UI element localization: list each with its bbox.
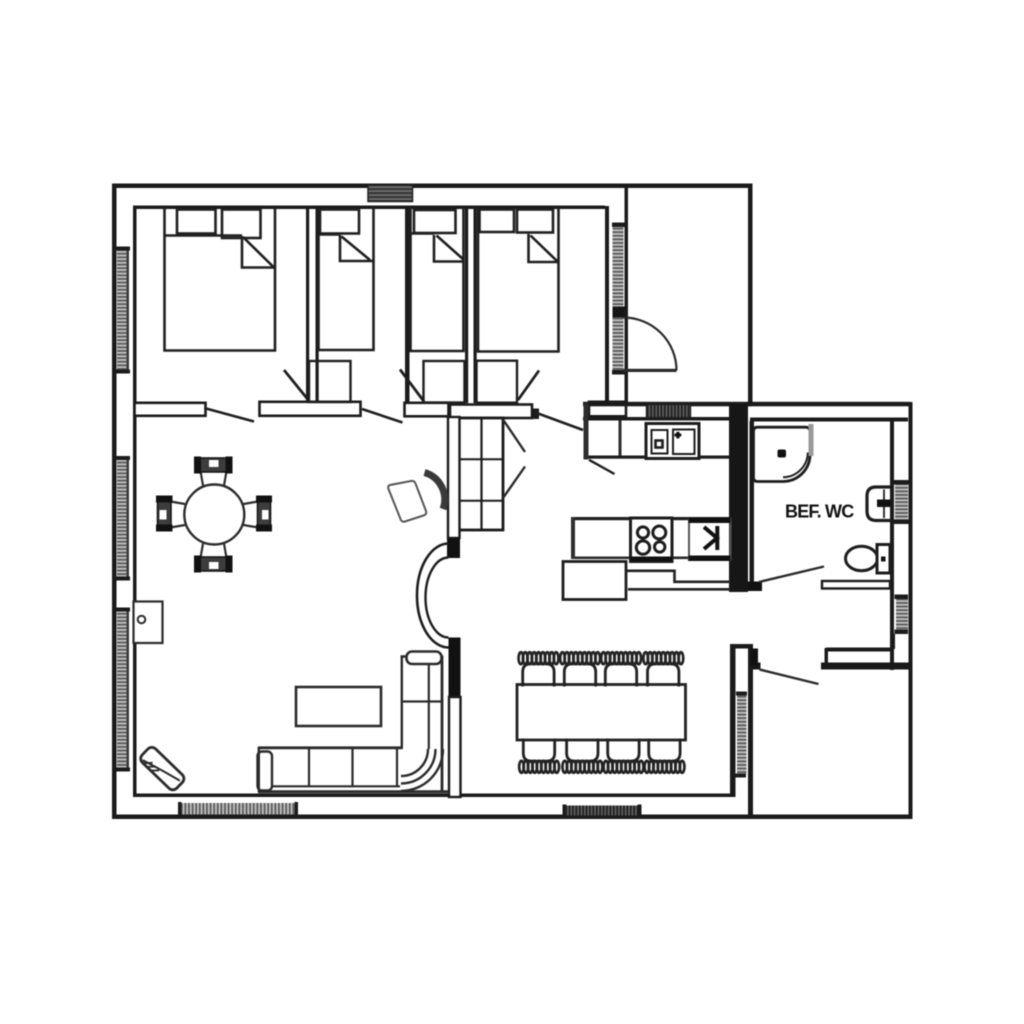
svg-text:BEF. WC: BEF. WC [785, 502, 854, 522]
